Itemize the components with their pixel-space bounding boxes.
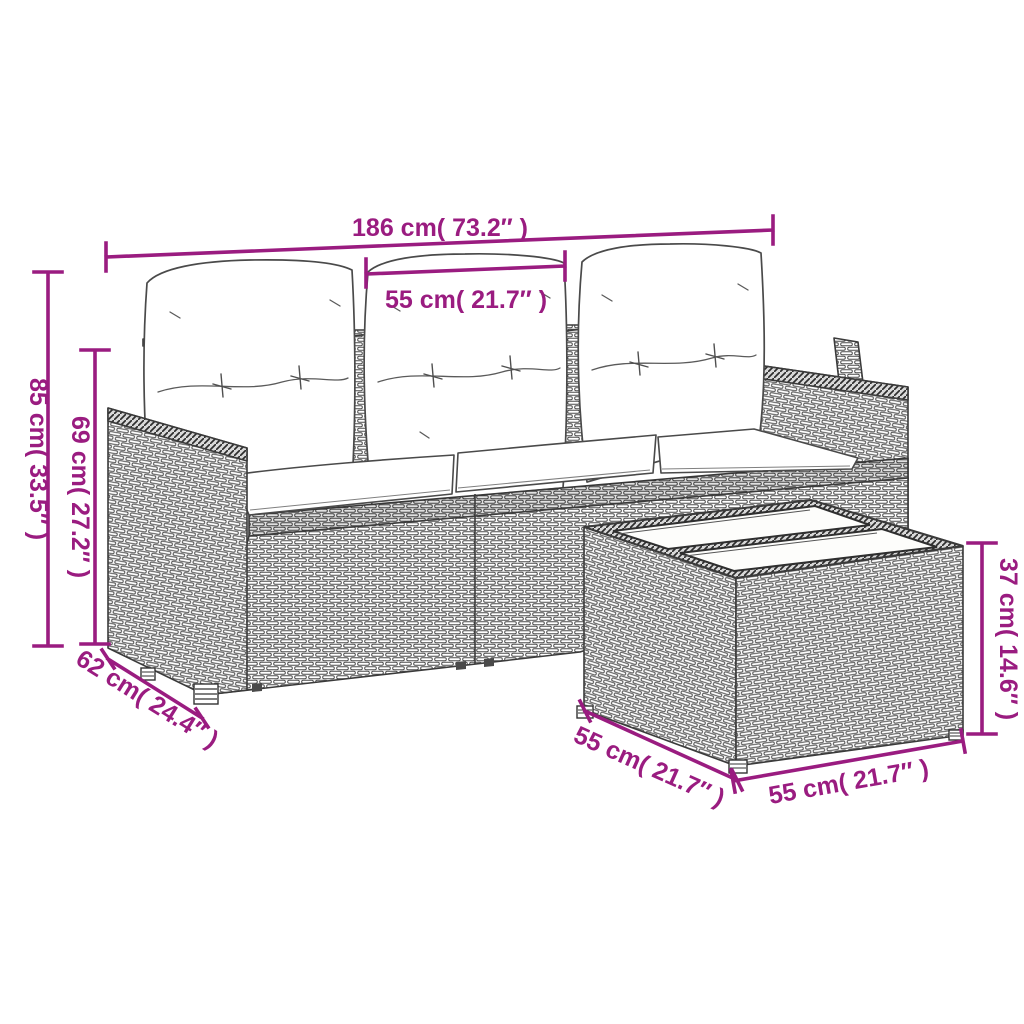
table-front-right-face	[736, 546, 963, 766]
diagram-canvas: 186 cm( 73.2″ ) 55 cm( 21.7″ ) 85 cm( 33…	[0, 0, 1024, 1024]
dim-table-height-label: 37 cm( 14.6″ )	[994, 558, 1022, 720]
dim-middle-seat-width-label: 55 cm( 21.7″ )	[385, 286, 547, 314]
dim-backrest-height-label: 69 cm( 27.2″ )	[66, 416, 94, 578]
dim-sofa-height: 85 cm( 33.5″ )	[24, 272, 62, 646]
dim-sofa-height-label: 85 cm( 33.5″ )	[24, 378, 52, 540]
dim-sofa-width-label: 186 cm( 73.2″ )	[352, 214, 528, 242]
sofa-left-armrest	[108, 408, 247, 695]
dim-backrest-height: 69 cm( 27.2″ )	[66, 350, 109, 644]
product-dimension-diagram: 186 cm( 73.2″ ) 55 cm( 21.7″ ) 85 cm( 33…	[0, 0, 1024, 1024]
dim-table-height: 37 cm( 14.6″ )	[968, 543, 1022, 734]
